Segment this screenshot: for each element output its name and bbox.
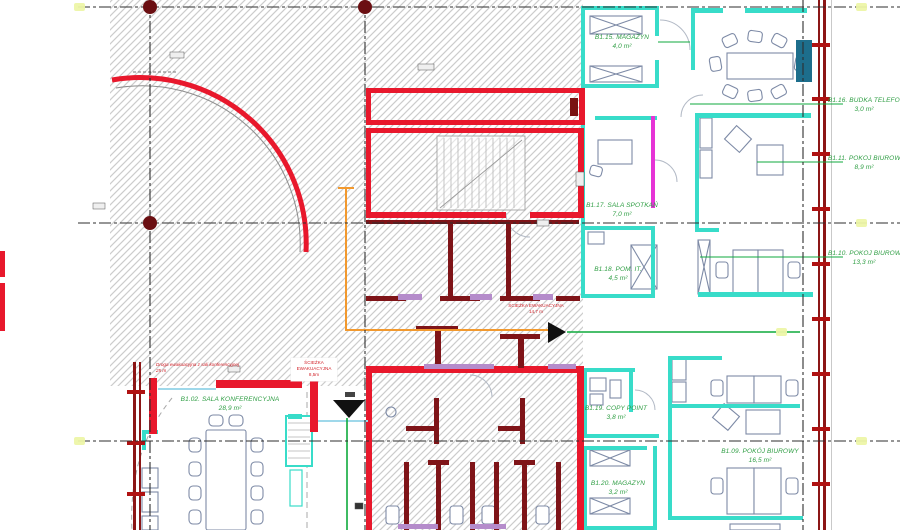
core-stair: [437, 136, 525, 210]
conference-evac-note: Droga ewakuacyjna z sali konferencyjnej …: [156, 362, 266, 374]
evac-arrow-down-icon: [333, 400, 365, 418]
window-sills: [158, 388, 368, 422]
side-stair: [286, 416, 312, 506]
floor-plan-drawing: [0, 0, 900, 530]
phone-booth: [796, 40, 812, 82]
right-facade-wall: [812, 0, 832, 530]
magenta-wall-accent: [651, 116, 655, 208]
floor-plan-canvas: B1.02. SALA KONFERENCYJNA 28,9 m² B1.15.…: [0, 0, 900, 530]
evac-path-label-box: ŚCIEŻKA EWAKUACYJNA 8,5m: [291, 358, 337, 381]
evac-path-label-right: ŚCIEŻKA EWAKUACYJNA 14,7 m: [502, 303, 570, 315]
meeting-table: [727, 53, 793, 79]
conference-table: [206, 430, 246, 530]
